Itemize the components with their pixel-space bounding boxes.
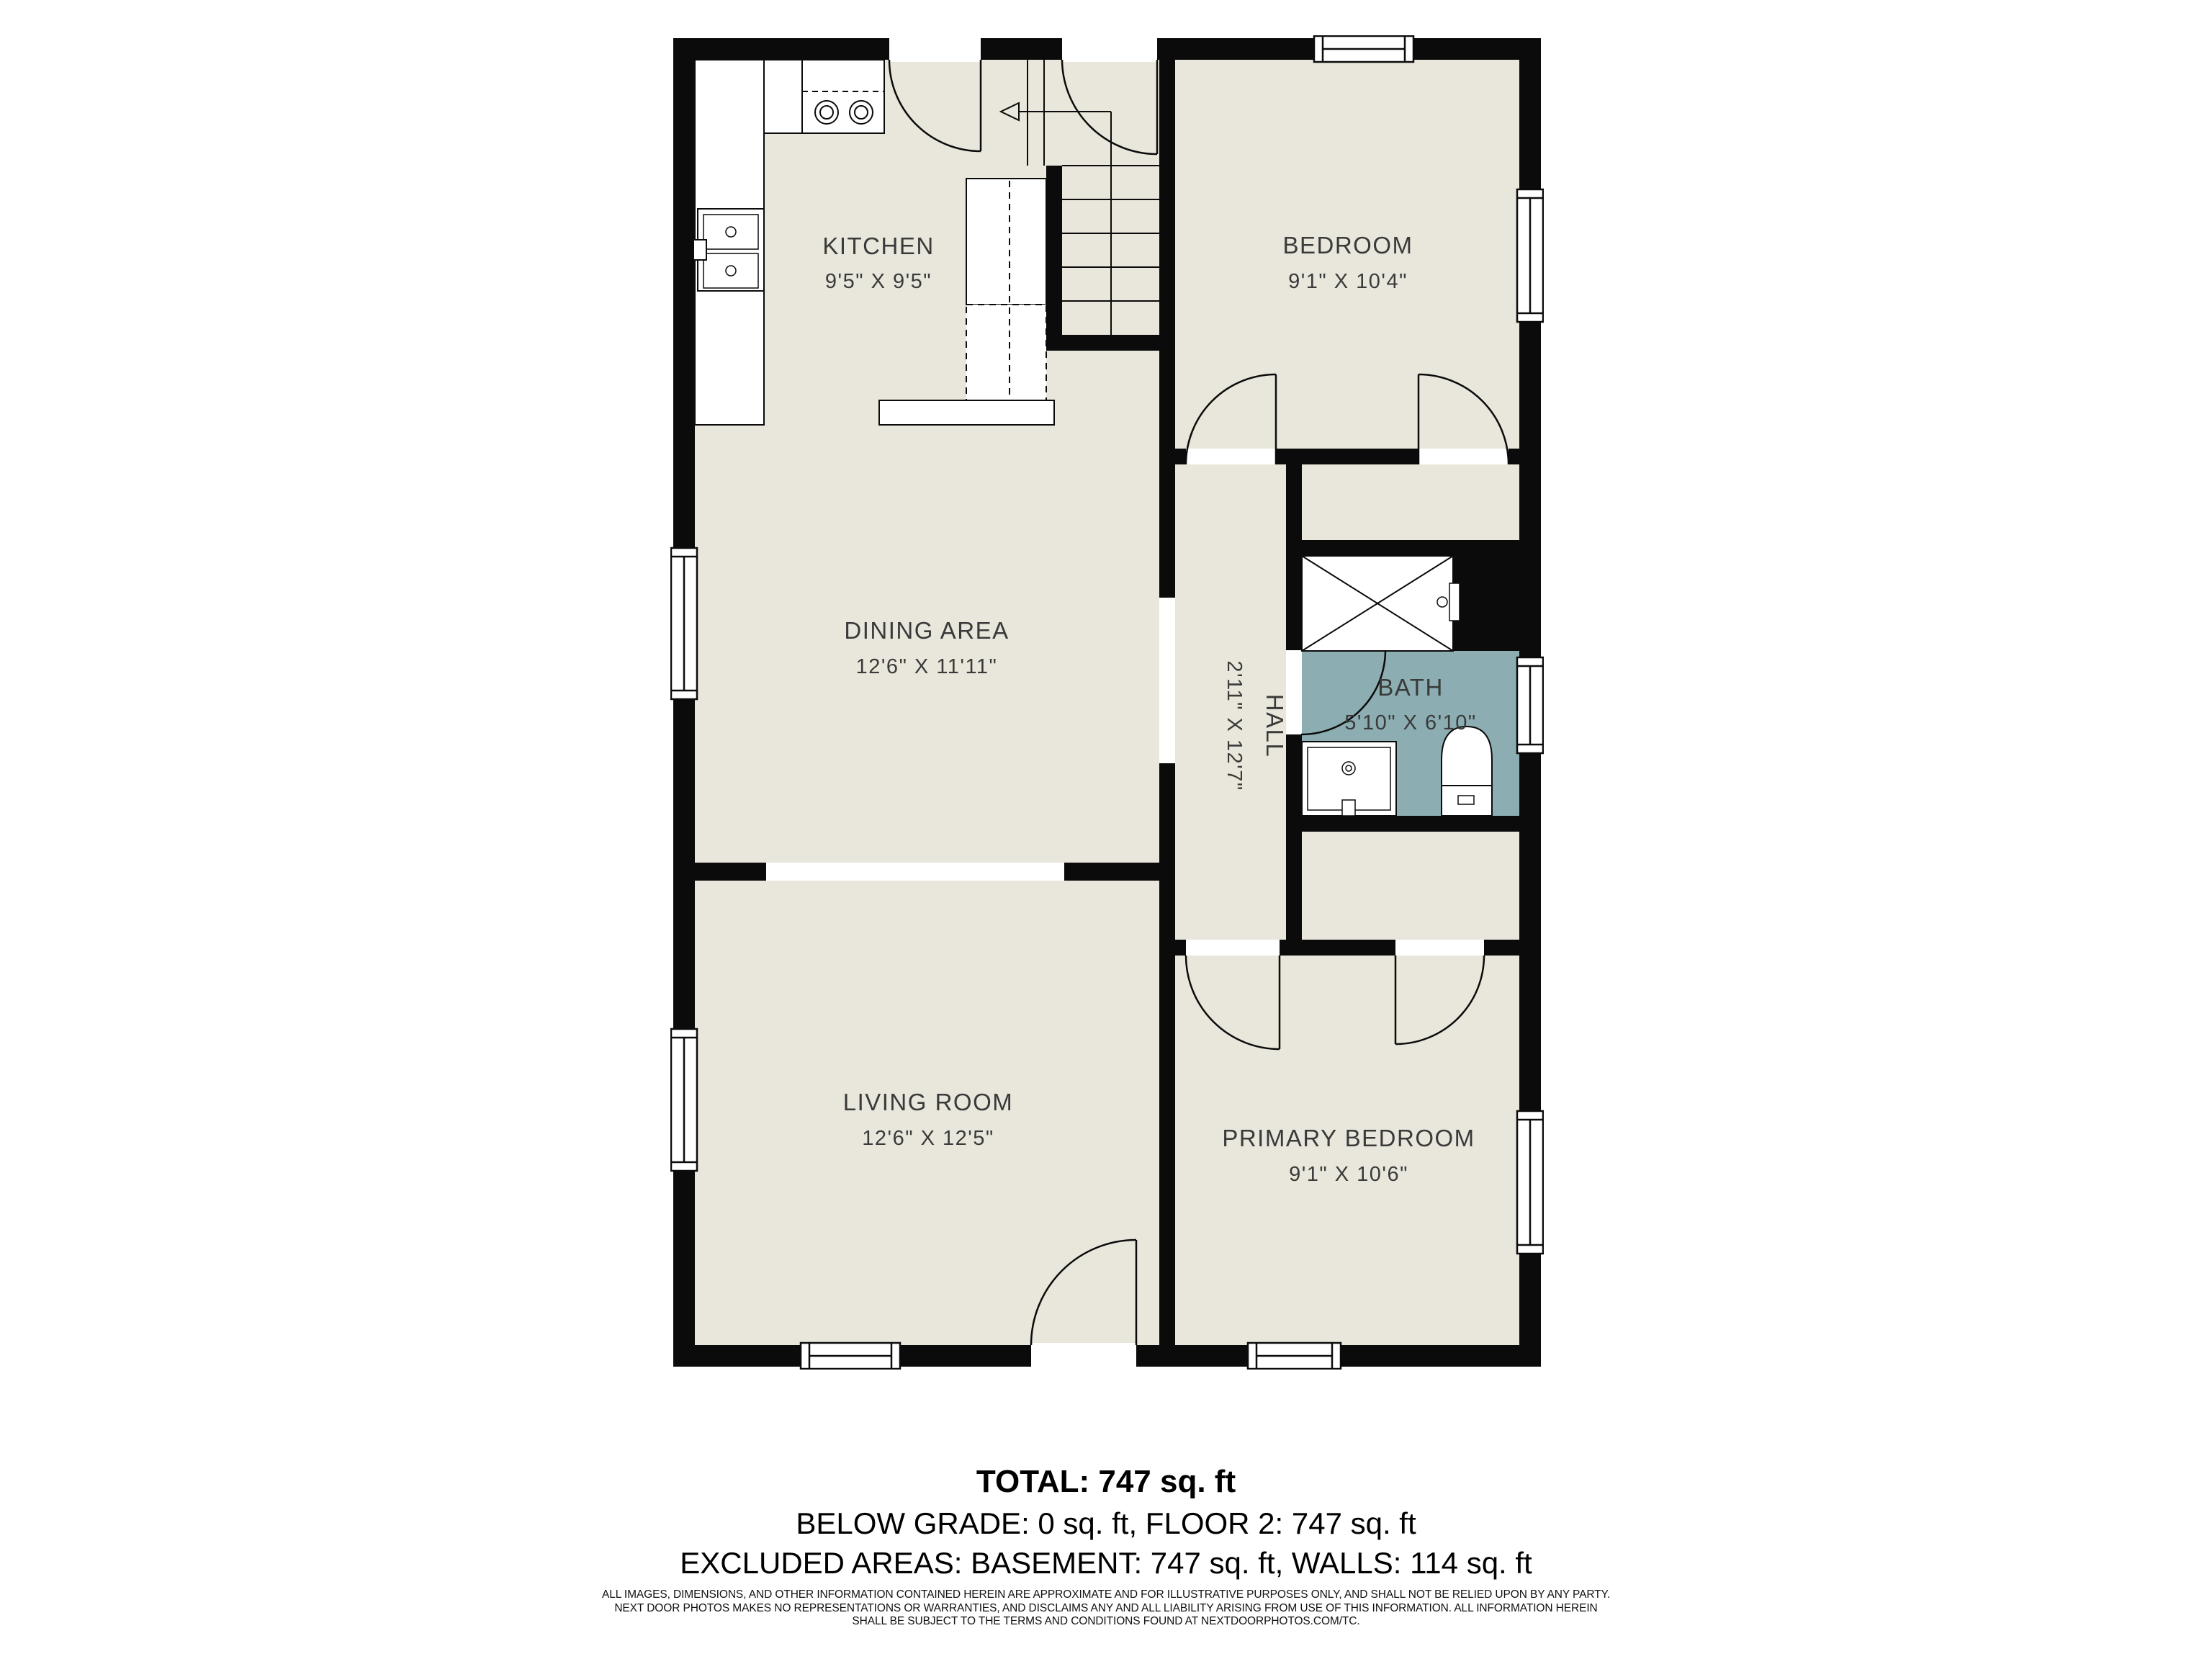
primary-label: PRIMARY BEDROOM (1222, 1125, 1475, 1151)
kitchen-dims: 9'5" X 9'5" (825, 270, 932, 293)
disclaimer-line-3: SHALL BE SUBJECT TO THE TERMS AND CONDIT… (0, 1615, 2212, 1629)
counter-island (879, 400, 1054, 425)
dining-window (671, 548, 697, 699)
bath-dims: 5'10" X 6'10" (1344, 711, 1476, 734)
primary-window-right (1517, 1111, 1543, 1254)
kitchen-sink (693, 209, 764, 291)
disclaimer-line-1: ALL IMAGES, DIMENSIONS, AND OTHER INFORM… (0, 1588, 2212, 1602)
bathroom-sink (1302, 742, 1396, 816)
refrigerator (966, 179, 1046, 402)
hall-dims: 2'11" X 12'7" (1223, 660, 1246, 791)
disclaimer-line-2: NEXT DOOR PHOTOS MAKES NO REPRESENTATION… (0, 1602, 2212, 1616)
primary-window-bottom (1248, 1343, 1341, 1369)
disclaimer: ALL IMAGES, DIMENSIONS, AND OTHER INFORM… (0, 1588, 2212, 1629)
bedroom-window-right (1517, 189, 1543, 322)
living-dims: 12'6" X 12'5" (862, 1127, 994, 1150)
primary-dims: 9'1" X 10'6" (1289, 1163, 1408, 1186)
bath-label: BATH (1377, 674, 1444, 701)
living-window-bottom (801, 1343, 900, 1369)
dining-dims: 12'6" X 11'11" (856, 655, 998, 678)
stove (802, 60, 884, 133)
total-area-text: TOTAL: 747 sq. ft (0, 1464, 2212, 1500)
bedroom-window-top (1314, 36, 1413, 62)
bedroom-label: BEDROOM (1282, 232, 1413, 258)
floor-plan: KITCHEN 9'5" X 9'5" BEDROOM 9'1" X 10'4"… (670, 35, 1544, 1370)
kitchen-label: KITCHEN (822, 233, 934, 259)
excluded-areas-text: EXCLUDED AREAS: BASEMENT: 747 sq. ft, WA… (0, 1546, 2212, 1581)
below-grade-text: BELOW GRADE: 0 sq. ft, FLOOR 2: 747 sq. … (0, 1506, 2212, 1541)
bath-window (1517, 657, 1543, 753)
living-window-left (671, 1029, 697, 1171)
toilet (1442, 727, 1492, 816)
living-label: LIVING ROOM (843, 1089, 1014, 1115)
bedroom-dims: 9'1" X 10'4" (1288, 270, 1408, 293)
hall-label: HALL (1262, 694, 1288, 758)
dining-label: DINING AREA (844, 617, 1009, 644)
shower (1302, 556, 1453, 651)
plumbing-void (1453, 556, 1519, 651)
